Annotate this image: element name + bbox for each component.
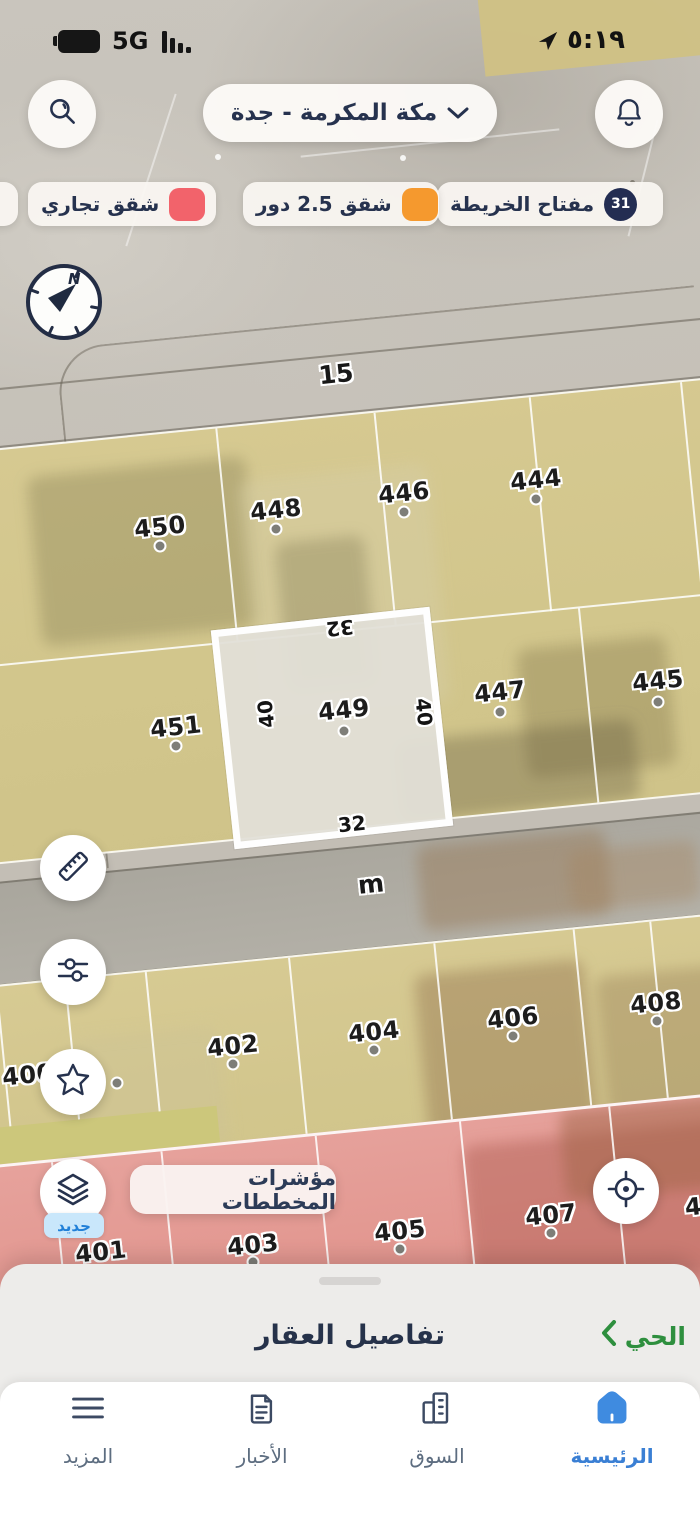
home-icon [592, 1388, 632, 1432]
status-bar: 5G ٥:١٩ [0, 22, 700, 62]
parcel-label-selected[interactable]: 449 [317, 693, 371, 726]
bottom-nav: الرئيسية السوق الأخبار [0, 1382, 700, 1514]
locate-me-button[interactable] [593, 1158, 659, 1224]
location-selector[interactable]: مكة المكرمة - جدة [203, 84, 497, 142]
selected-parcel-449[interactable] [211, 607, 453, 849]
layers-icon [54, 1171, 92, 1213]
dimension-top: 32 [325, 615, 355, 642]
notifications-button[interactable] [595, 80, 663, 148]
parcel-dot [227, 1058, 240, 1071]
map-key-count-badge: 31 [604, 188, 637, 221]
parcel-dot [394, 1243, 407, 1256]
news-icon [242, 1388, 282, 1432]
legend-chip-commercial: شقق تجاري [28, 182, 216, 226]
parcel-label[interactable]: 447 [473, 675, 527, 708]
parcel-dot [651, 1015, 664, 1028]
sheet-title: تفاصيل العقار [0, 1320, 700, 1351]
dimension-right: 40 [411, 697, 438, 727]
clock: ٥:١٩ [567, 25, 625, 55]
parcel-dot [368, 1044, 381, 1057]
app-screen: 15 m 32 40 40 32 450 448 446 444 451 449… [0, 0, 700, 1514]
parcel-label[interactable]: 40 [683, 1190, 700, 1221]
tab-home[interactable]: الرئيسية [552, 1388, 672, 1468]
battery-icon [58, 30, 100, 53]
buildings-icon [417, 1388, 457, 1432]
parcel-dot [530, 493, 543, 506]
district-label: الحي [625, 1322, 686, 1351]
district-link[interactable]: الحي [601, 1320, 686, 1352]
dimension-bottom: 32 [337, 811, 367, 838]
legend-swatch-red [169, 188, 205, 221]
drag-handle[interactable] [319, 1277, 381, 1285]
menu-icon [68, 1388, 108, 1432]
network-type: 5G [112, 27, 148, 55]
tab-home-label: الرئيسية [570, 1444, 653, 1468]
map-dot [400, 155, 406, 161]
parcel-dot [507, 1030, 520, 1043]
bell-icon [612, 95, 646, 133]
street-label-15: 15 [317, 358, 355, 390]
new-badge: جديد [44, 1213, 104, 1238]
dimension-left: 40 [253, 699, 280, 729]
map-key-label: مفتاح الخريطة [450, 192, 594, 216]
parcel-dot [652, 696, 665, 709]
parcel-label[interactable]: 445 [631, 664, 685, 697]
measure-button[interactable] [40, 835, 106, 901]
tab-more[interactable]: المزيد [28, 1388, 148, 1468]
legend-chip-apartments-2-5: شقق 2.5 دور [243, 182, 439, 226]
chevron-left-icon [601, 1320, 617, 1352]
tab-more-label: المزيد [63, 1444, 113, 1468]
compass-button[interactable]: N [24, 262, 104, 342]
ruler-icon [54, 847, 92, 889]
search-button[interactable] [28, 80, 96, 148]
parcel-dot [154, 540, 167, 553]
legend-swatch-orange [402, 188, 438, 221]
tab-news-label: الأخبار [236, 1444, 287, 1468]
tab-news[interactable]: الأخبار [202, 1388, 322, 1468]
favorites-button[interactable] [40, 1049, 106, 1115]
location-label: مكة المكرمة - جدة [231, 100, 437, 126]
map-key-chip[interactable]: مفتاح الخريطة 31 [437, 182, 663, 226]
location-arrow-icon [537, 30, 559, 56]
parcel-dot [270, 523, 283, 536]
legend-chip-partial [0, 182, 18, 226]
compass-north-label: N [68, 270, 81, 288]
parcel-dot [398, 506, 411, 519]
map-dot [215, 154, 221, 160]
parcel-dot [494, 706, 507, 719]
parcel-dot [338, 725, 351, 738]
parcel-dot [170, 740, 183, 753]
parcel-dot [111, 1077, 124, 1090]
chevron-down-icon [447, 100, 469, 126]
tab-market-label: السوق [409, 1444, 464, 1468]
sliders-icon [55, 952, 91, 992]
tab-market[interactable]: السوق [377, 1388, 497, 1468]
filters-button[interactable] [40, 939, 106, 1005]
legend-label: شقق 2.5 دور [256, 192, 392, 216]
parcel-dot [545, 1227, 558, 1240]
signal-strength-icon [162, 30, 191, 53]
plans-indicators-button[interactable]: مؤشرات المخططات [130, 1165, 336, 1214]
legend-label: شقق تجاري [41, 192, 159, 216]
target-icon [606, 1169, 646, 1213]
street-label-m: m [357, 868, 386, 900]
search-icon [45, 95, 79, 133]
star-icon [54, 1061, 92, 1103]
